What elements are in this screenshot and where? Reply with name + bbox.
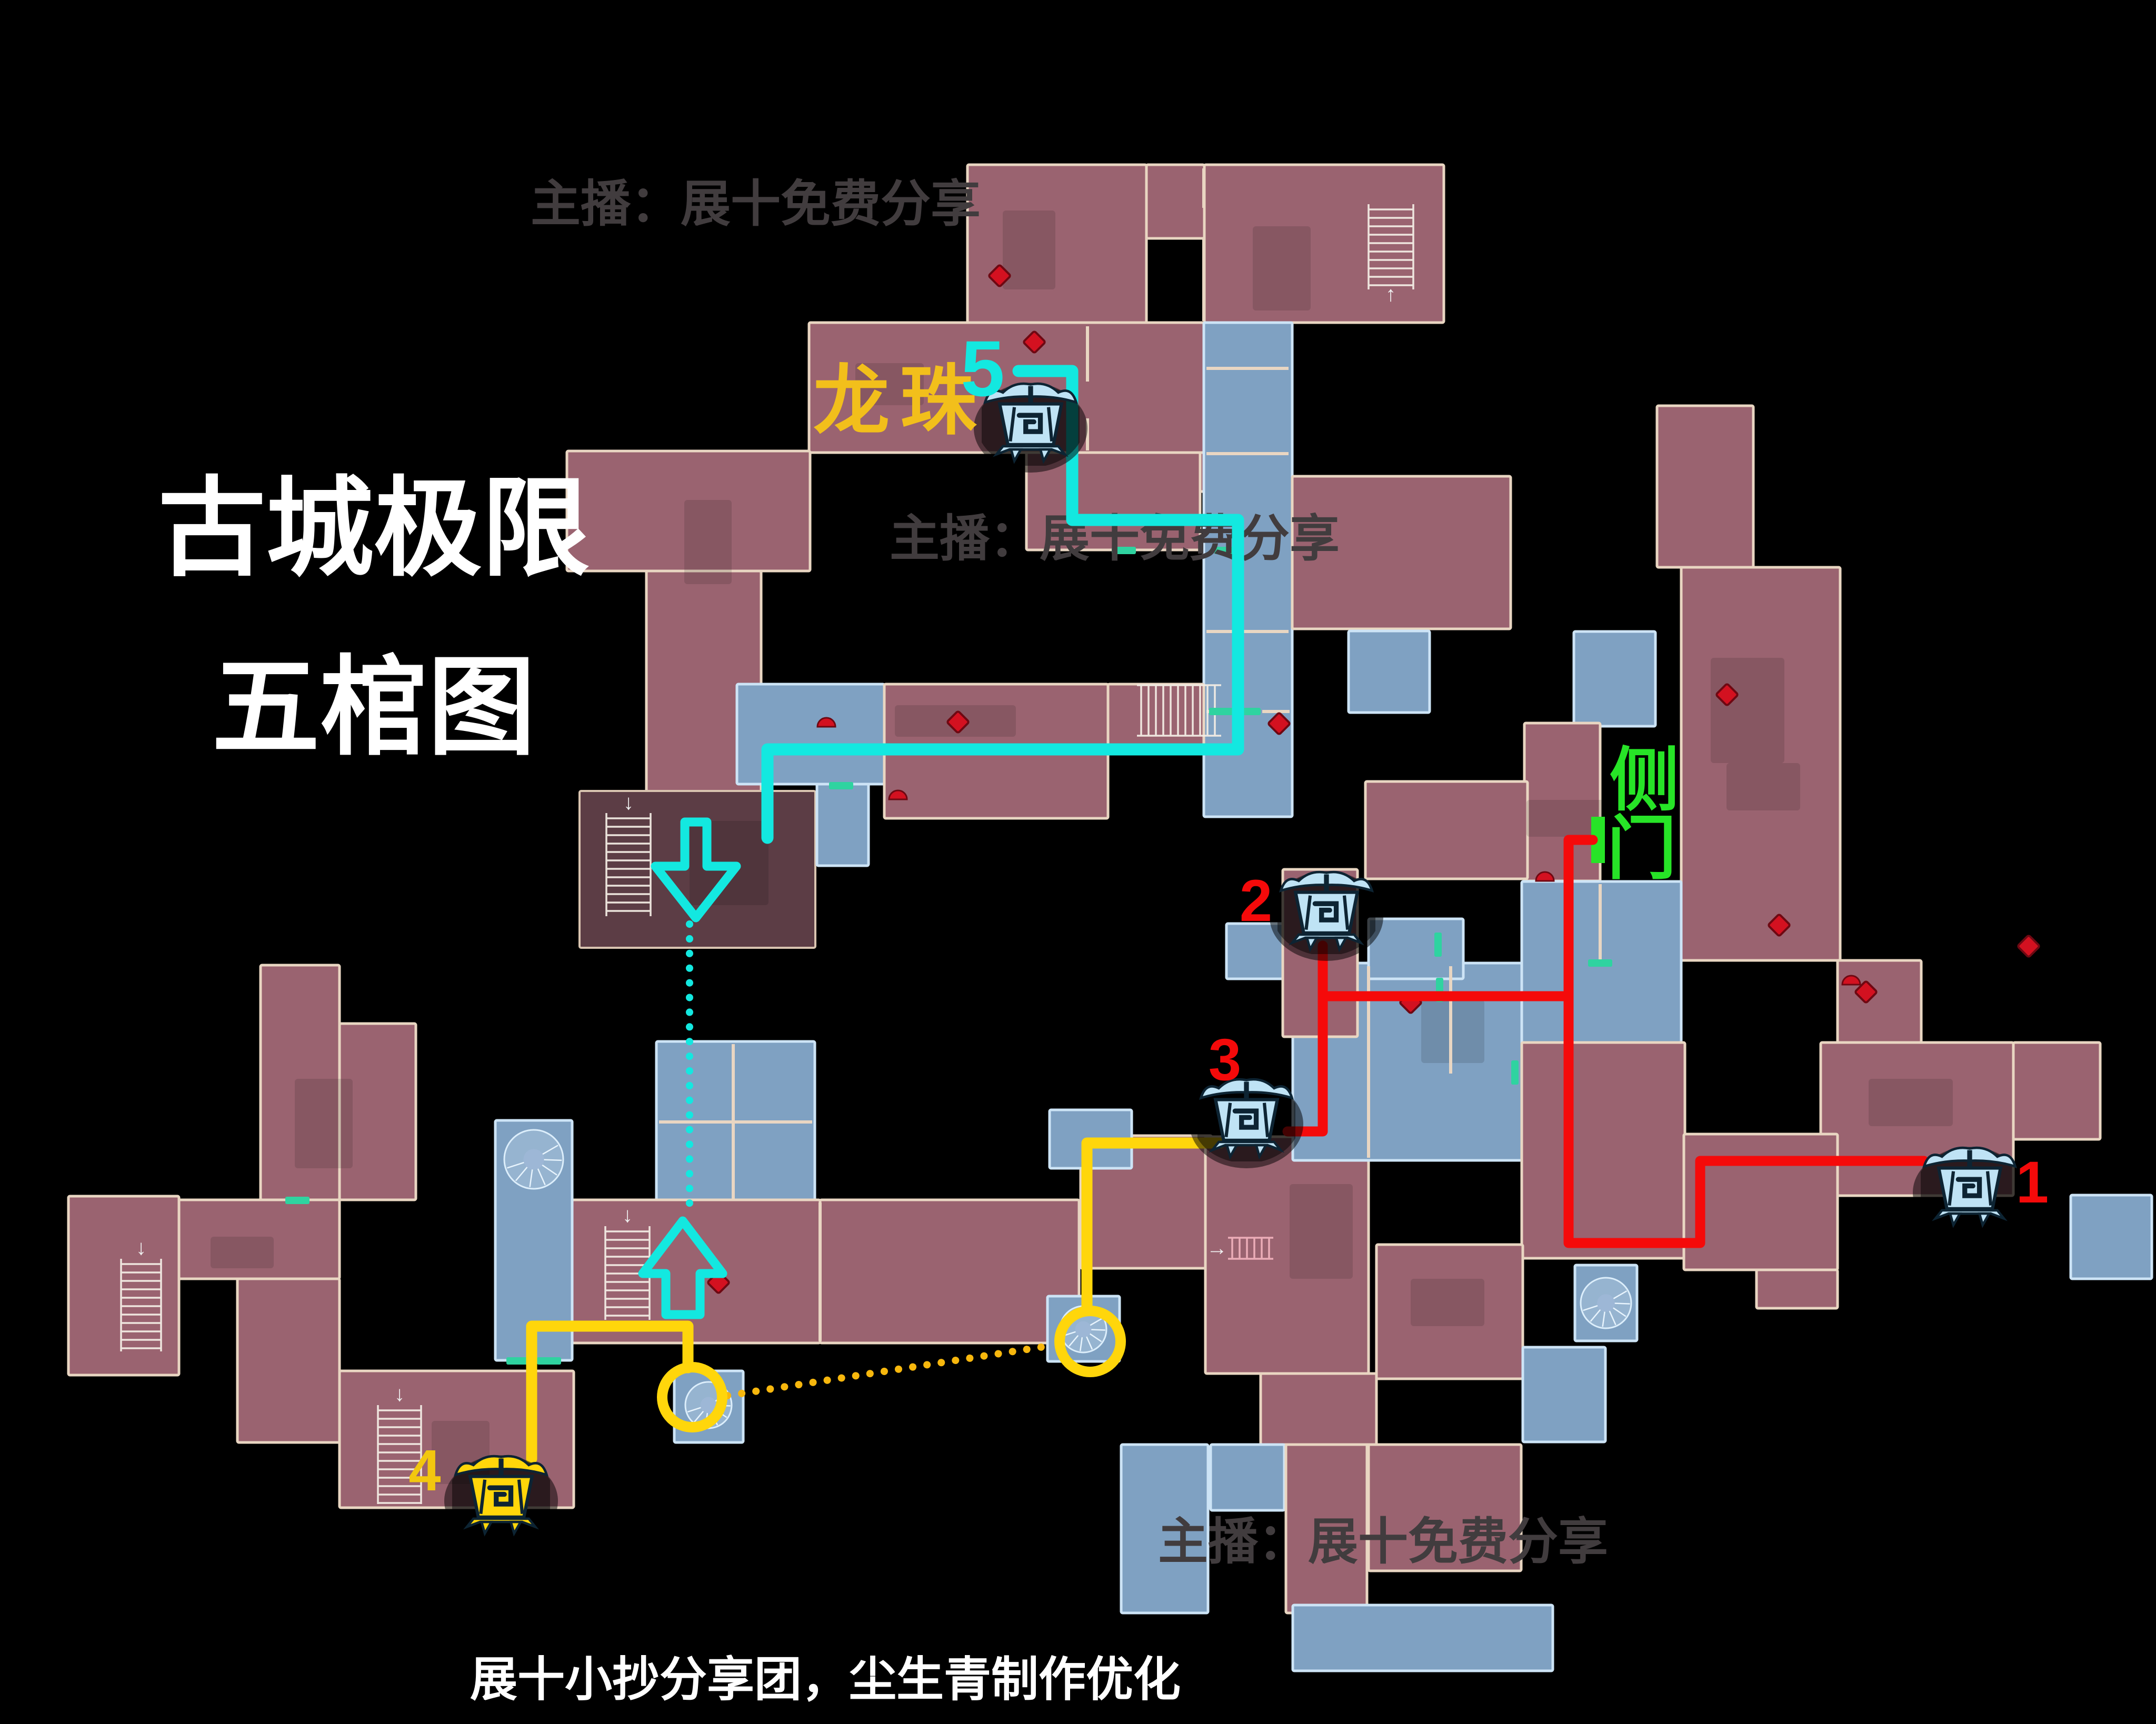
map-room: [1293, 1605, 1553, 1671]
coffin-number-2: 2: [1240, 868, 1272, 934]
map-room: [1523, 1347, 1605, 1442]
map-room: [1657, 406, 1753, 567]
room-furniture: [1411, 1279, 1484, 1326]
room-furniture: [1869, 1079, 1953, 1126]
green-door-marker-icon: [537, 1357, 561, 1365]
stair-direction-arrow-icon: ↑: [1385, 283, 1396, 306]
green-door-marker-icon: [285, 1197, 310, 1204]
stair-direction-arrow-icon: ↓: [136, 1236, 146, 1259]
room-furniture: [1711, 658, 1784, 763]
map-room: [237, 1279, 340, 1442]
spiral-staircase-icon: [1581, 1278, 1631, 1328]
side-door-label-char2: 门: [1607, 810, 1676, 887]
room-furniture: [1726, 763, 1800, 810]
watermark-bottom-right: 主播：展十免费分享: [1158, 1514, 1608, 1570]
side-door-label-char1: 侧: [1610, 741, 1679, 819]
green-door-marker-icon: [1511, 1060, 1519, 1085]
spiral-center: [523, 1149, 544, 1169]
room-furniture: [1290, 1184, 1353, 1279]
map-room: [1574, 632, 1655, 726]
green-door-marker-icon: [829, 782, 853, 789]
bottom-caption: 展十小抄分享团，尘生青制作优化: [470, 1653, 1181, 1706]
map-title-line1: 古城极限: [158, 468, 590, 589]
stair-direction-arrow-icon: ↓: [394, 1382, 405, 1406]
coffin-number-1: 1: [2016, 1149, 2049, 1215]
spiral-center: [1075, 1321, 1092, 1338]
map-room: [817, 779, 869, 866]
room-furniture: [1421, 1000, 1484, 1063]
route-yellow-dotted: [727, 1345, 1054, 1396]
green-door-marker-icon: [1209, 708, 1233, 715]
room-furniture: [211, 1237, 274, 1268]
spiral-step: [541, 1159, 562, 1160]
coffin-number-5: 5: [961, 324, 1004, 413]
stair-direction-arrow-icon: ↓: [622, 1204, 633, 1227]
map-room: [1838, 960, 1921, 1043]
stair-direction-arrow-icon: ↓: [623, 791, 634, 814]
game-map: ↑↓↓↓→↓ 主播：展十免费分享 主播：展十免费分享 主播：展十免费分享 古城极…: [0, 0, 2156, 1724]
green-door-marker-icon: [1588, 959, 1612, 967]
spiral-step: [1089, 1329, 1105, 1330]
map-room: [1756, 1270, 1838, 1308]
map-room: [2071, 1195, 2152, 1279]
map-room: [1349, 631, 1430, 713]
coffin-icon: [1273, 871, 1380, 956]
coffin-icon: [447, 1455, 555, 1540]
coffin-number-4: 4: [408, 1438, 441, 1503]
map-room: [1204, 323, 1292, 817]
map-room: [1146, 165, 1204, 238]
coffin-icon: [1916, 1147, 2023, 1231]
map-room: [967, 165, 1146, 323]
room-furniture: [295, 1079, 353, 1168]
green-door-marker-icon: [1434, 933, 1442, 957]
room-furniture: [1003, 211, 1055, 289]
map-room: [1261, 1374, 1376, 1445]
map-room: [737, 684, 884, 784]
spiral-staircase-icon: [504, 1130, 563, 1189]
watermark-top: 主播：展十免费分享: [531, 176, 981, 232]
map-room: [1522, 1043, 1685, 1258]
map-room: [1684, 1134, 1838, 1270]
red-diamond-marker-icon: [2018, 935, 2040, 957]
map-room: [2013, 1043, 2100, 1139]
map-room: [820, 1200, 1079, 1343]
room-furniture: [1253, 226, 1311, 310]
map-room: [1365, 781, 1528, 879]
room-furniture: [684, 500, 732, 584]
stair-direction-arrow-icon: →: [1206, 1237, 1227, 1260]
spiral-step: [1612, 1303, 1630, 1304]
spiral-center: [1597, 1294, 1615, 1312]
map-room: [1211, 1445, 1284, 1510]
map-title-line2: 五棺图: [212, 647, 536, 768]
coffin-number-3: 3: [1209, 1027, 1241, 1092]
